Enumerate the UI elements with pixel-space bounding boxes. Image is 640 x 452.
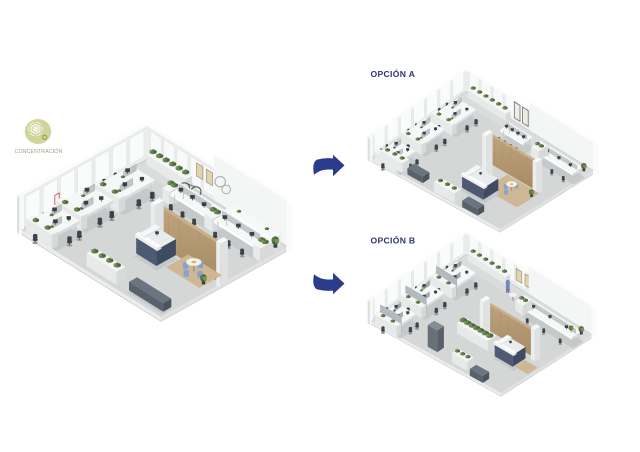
svg-text:CONCENTRACIÓN: CONCENTRACIÓN	[15, 148, 63, 155]
svg-text:OPCIÓN B: OPCIÓN B	[371, 235, 416, 246]
svg-text:OPCIÓN A: OPCIÓN A	[371, 68, 416, 79]
